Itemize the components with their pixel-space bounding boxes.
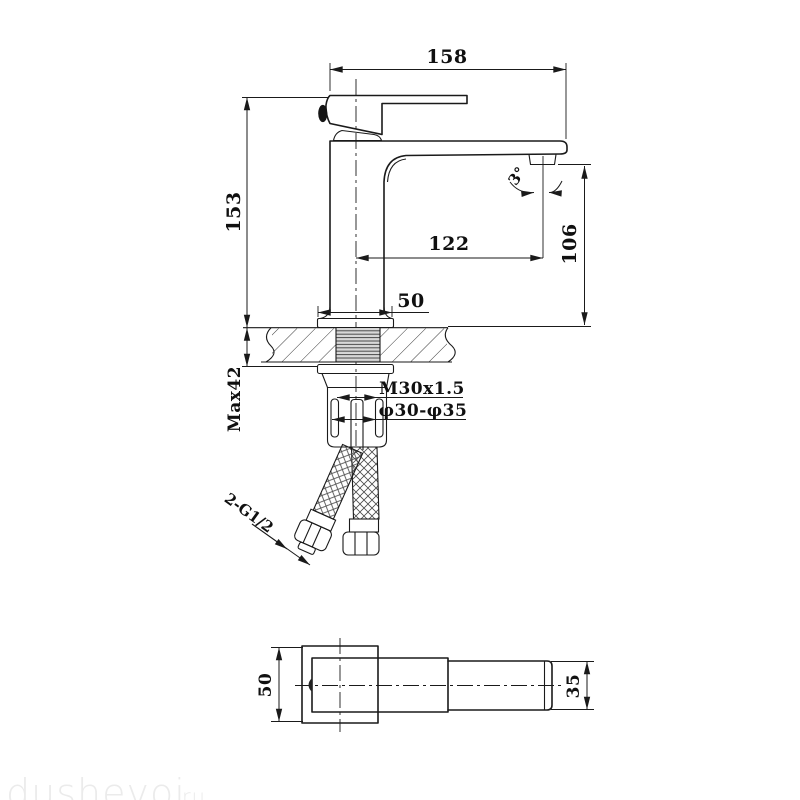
countertop-hatch-left — [272, 329, 336, 362]
plan-body-width-label: 50 — [256, 673, 276, 698]
watermark-text: dushevoi — [6, 771, 186, 800]
plan-pivot-pin — [309, 678, 313, 693]
supply-hoses — [290, 442, 379, 559]
faucet-body — [330, 141, 567, 312]
plan-body — [312, 658, 448, 712]
dimension-total-height: 153 — [223, 98, 329, 328]
hose-connection-label: 2-G1/2 — [221, 489, 277, 536]
label-hole-diameter: φ30-φ35 — [332, 401, 467, 421]
hose-right-nut-facets — [355, 532, 367, 555]
watermark-suffix: ru — [182, 785, 206, 800]
hole-diameter-label: φ30-φ35 — [379, 401, 468, 421]
mounting-center-rod — [351, 400, 363, 451]
label-swivel-angle: 3° — [504, 164, 562, 193]
base-plate — [318, 319, 394, 328]
faucet-outline — [318, 96, 568, 328]
swivel-arc-right — [549, 181, 562, 193]
cartridge-cap — [334, 131, 382, 141]
drawing-svg: 158 153 122 106 50 Max42 — [0, 0, 800, 800]
faucet-technical-drawing: 158 153 122 106 50 Max42 — [0, 0, 800, 800]
swivel-angle-label: 3° — [504, 164, 529, 189]
front-view: 158 153 122 106 50 Max42 — [221, 46, 591, 565]
plan-handle-width-label: 35 — [564, 674, 584, 699]
hose-left-nut-facets — [303, 523, 321, 547]
dim-spout-reach-label: 122 — [428, 233, 469, 255]
ext-line — [330, 63, 566, 139]
hose-right-nut — [343, 532, 379, 555]
dimension-plan-body-width: 50 — [256, 648, 303, 722]
label-hose-connection: 2-G1/2 — [221, 489, 310, 565]
hose-right-collar — [350, 519, 379, 532]
mounting-stud-left — [331, 399, 339, 437]
plan-view: 50 35 — [256, 638, 594, 732]
dimension-base-width: 50 — [318, 290, 429, 317]
dimension-total-width: 158 — [330, 46, 566, 139]
dimension-plan-handle-width: 35 — [551, 662, 594, 710]
mounting-thread-label: M30x1.5 — [379, 379, 465, 399]
dim-max-deck-label: Max42 — [225, 366, 245, 432]
countertop-hatch-right — [380, 329, 447, 362]
mounting-washer — [318, 365, 394, 374]
handle-pivot-screw — [318, 105, 327, 122]
thread-shank — [336, 328, 380, 362]
dim-total-width-label: 158 — [426, 46, 467, 68]
handle-lever — [326, 96, 467, 135]
thread-shank-body — [336, 328, 380, 362]
mounting-nut-body — [328, 388, 387, 448]
spout-aerator — [529, 155, 556, 165]
watermark: dushevoi ru — [6, 771, 206, 800]
dim-spout-height-label: 106 — [559, 223, 581, 264]
dim-base-width-label: 50 — [397, 290, 424, 312]
dim-total-height-label: 153 — [223, 191, 245, 232]
